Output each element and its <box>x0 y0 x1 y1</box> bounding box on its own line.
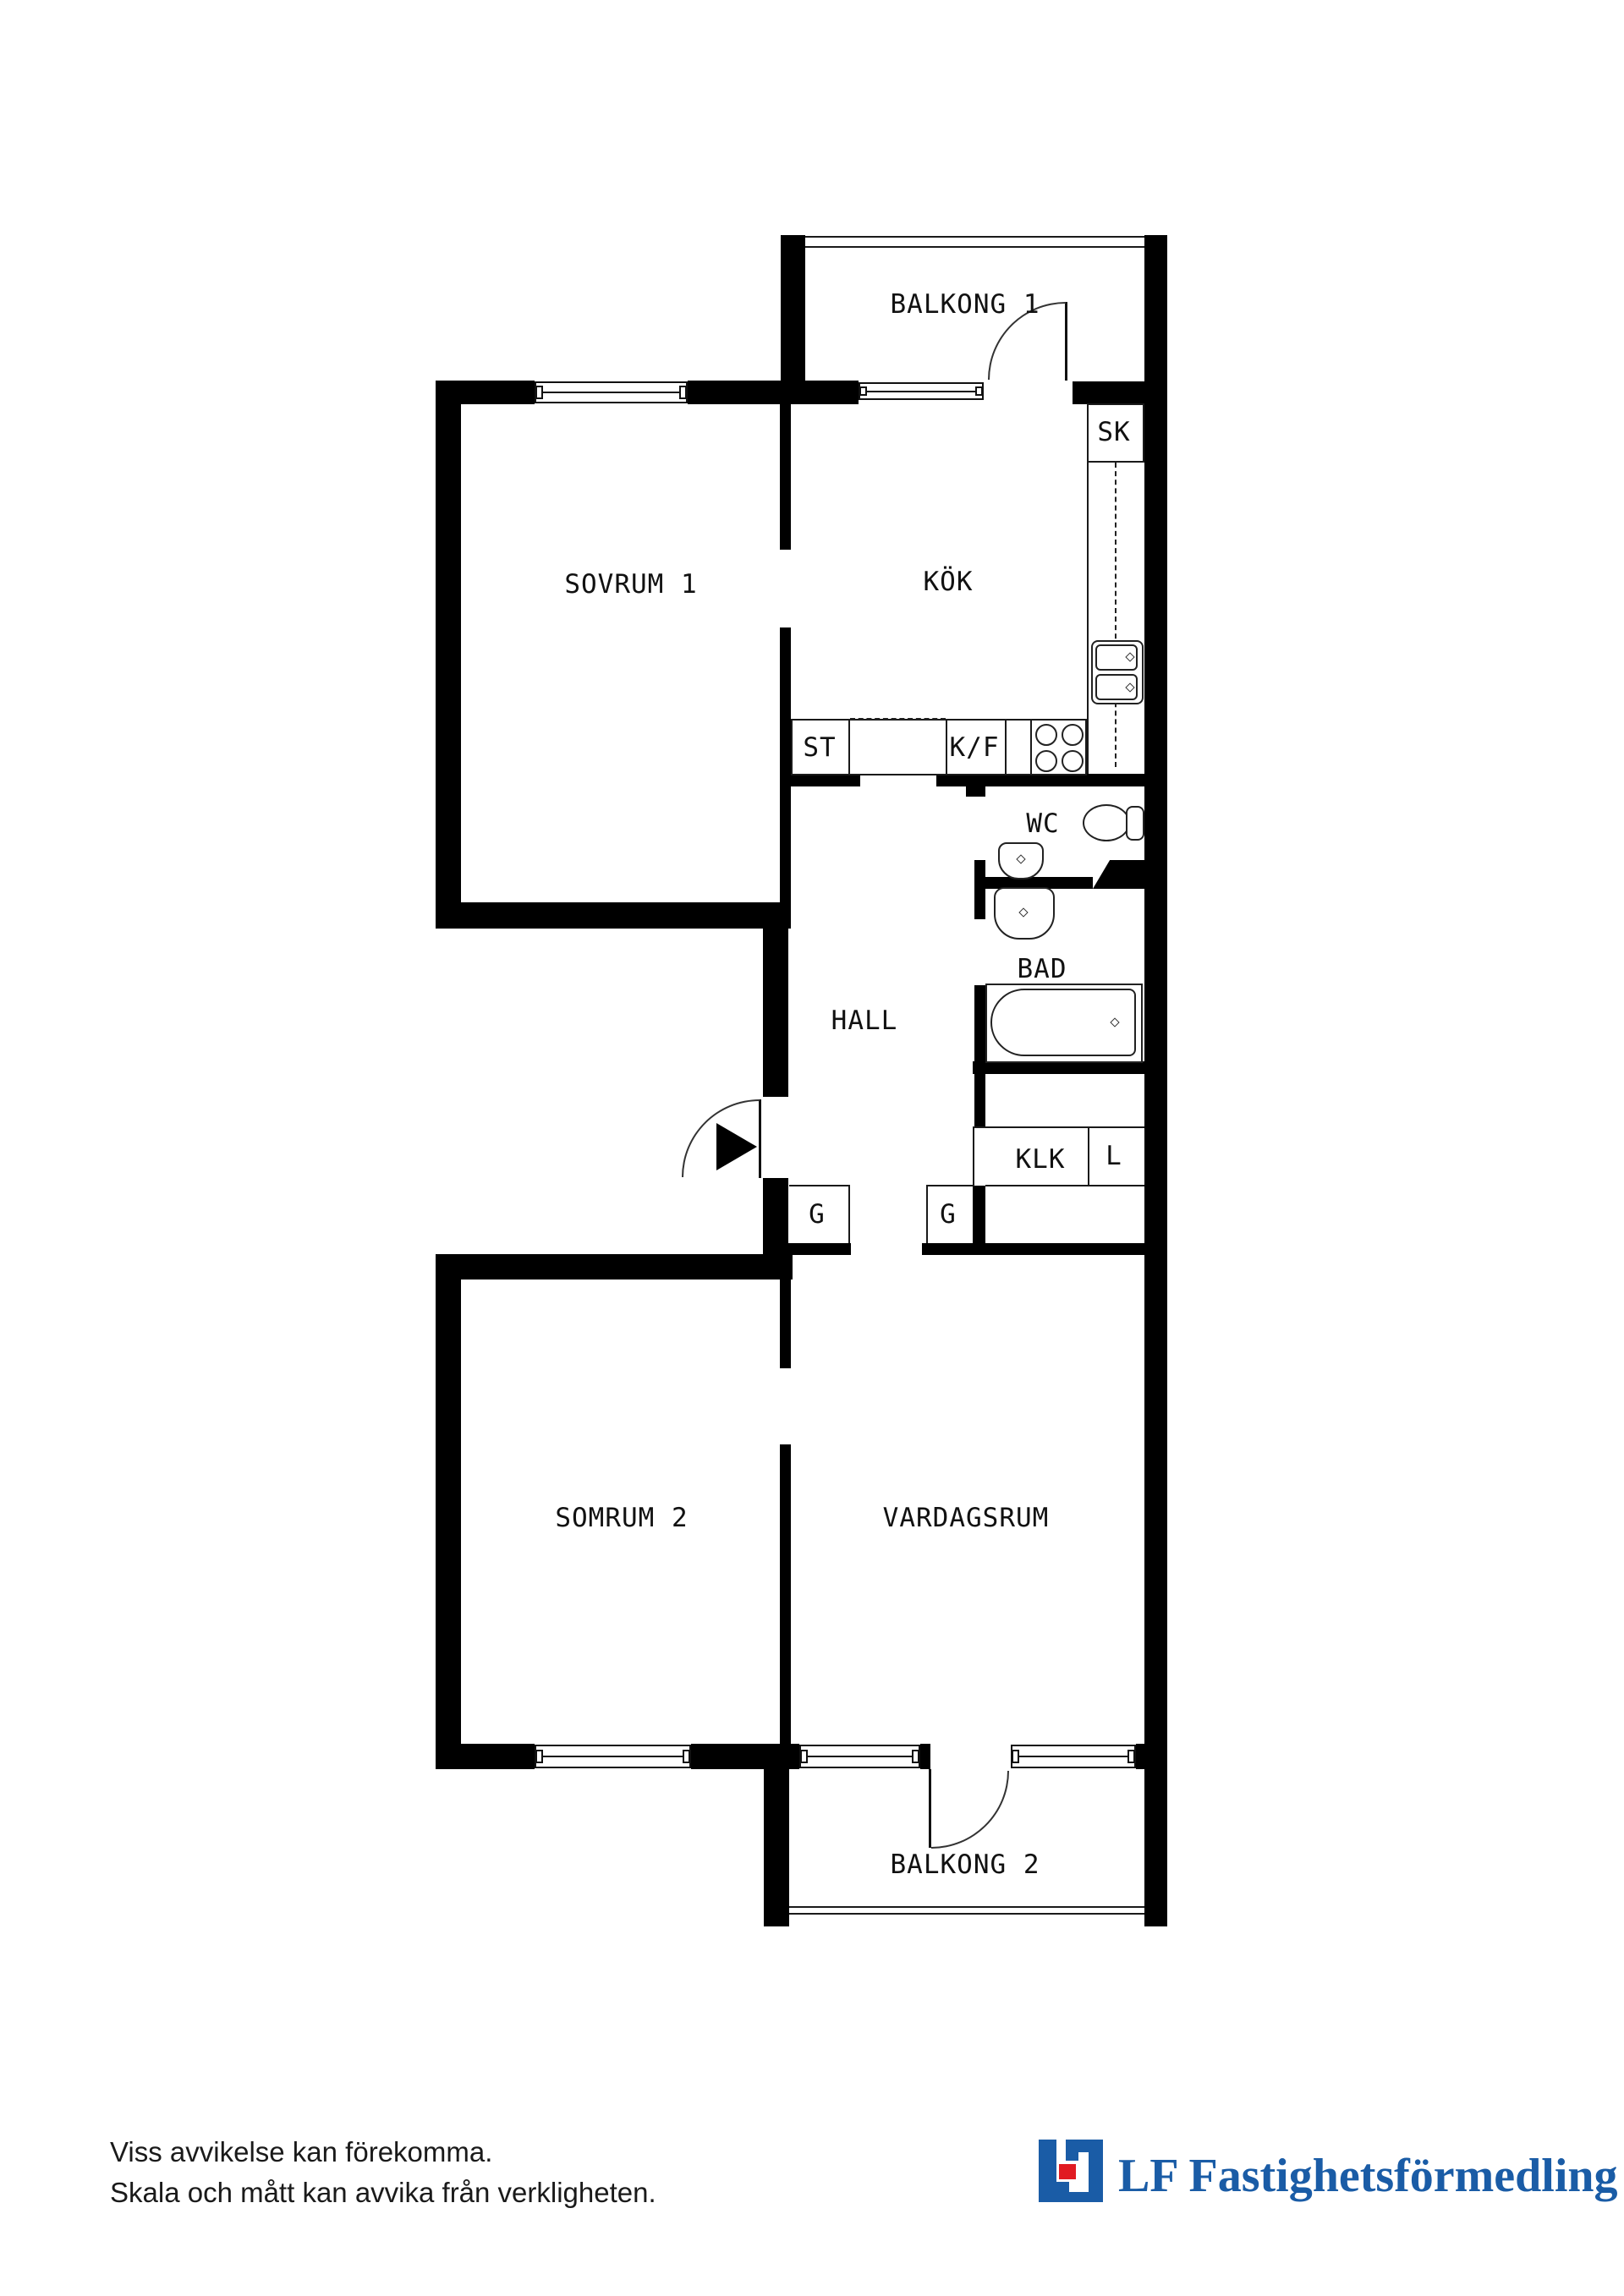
wall-wc-left <box>974 860 985 919</box>
window-end-cap <box>535 386 543 398</box>
kitchen-sink <box>1091 640 1144 704</box>
wall-hall-bottom-b <box>922 1243 1153 1255</box>
wall-wc-door-jamb <box>966 786 985 797</box>
wall-somrum2-bottom-b <box>691 1744 791 1769</box>
room-label-sk: SK <box>1097 417 1130 447</box>
wall-vardagsrum-bottom-b <box>1136 1744 1146 1769</box>
klk-left-edge <box>973 1126 974 1186</box>
kf-left-edge <box>946 719 947 775</box>
wall-hall-left-upper <box>763 929 788 1097</box>
kf-right-edge <box>1005 719 1007 775</box>
somrum2-window <box>535 1745 691 1768</box>
stove-left-edge <box>1030 719 1032 775</box>
wall-g2-right <box>973 1186 985 1243</box>
wall-sovrum1-bottom <box>436 902 791 929</box>
sovrum1-window <box>535 381 688 403</box>
stove-burner-icon <box>1035 750 1057 772</box>
wall-below-tub <box>973 1061 1144 1074</box>
room-label-vardagsrum: VARDAGSRUM <box>883 1503 1050 1533</box>
wall-somrum2-top <box>436 1254 793 1280</box>
g1-top-edge <box>789 1185 850 1186</box>
g2-left-edge <box>926 1185 928 1243</box>
stove-burner-icon <box>1035 724 1057 746</box>
room-label-bad: BAD <box>1018 954 1067 984</box>
wall-divider2-lower <box>780 1444 791 1744</box>
disclaimer-line-2: Skala och mått kan avvika från verklighe… <box>110 2177 656 2209</box>
vardagsrum-window-1 <box>799 1745 920 1768</box>
bad-washbasin <box>994 887 1055 940</box>
stove-burner-icon <box>1062 750 1084 772</box>
window-end-cap <box>1127 1750 1135 1764</box>
wall-outer-right <box>1144 235 1167 1926</box>
g1-right-edge <box>848 1185 850 1243</box>
window-end-cap <box>683 1750 690 1764</box>
wall-top-b <box>688 381 859 404</box>
pass-through-dashed-line <box>850 718 946 720</box>
wall-divider1-lower <box>780 627 791 902</box>
room-label-balkong2: BALKONG 2 <box>891 1849 1040 1880</box>
kok-window <box>859 382 984 400</box>
wall-below-wc-diagonal <box>1093 860 1144 889</box>
balkong2-rail-inner <box>789 1906 1144 1908</box>
room-label-hall: HALL <box>831 1006 898 1036</box>
wall-top-c <box>1073 381 1144 404</box>
room-label-kok: KÖK <box>924 567 974 597</box>
room-label-wc: WC <box>1026 808 1059 839</box>
window-end-cap <box>800 1750 808 1764</box>
stove-burner-icon <box>1062 724 1084 746</box>
balkong2-rail-outer <box>789 1913 1144 1915</box>
wall-divider2-upper <box>780 1280 791 1368</box>
lf-logo-wordmark: LF Fastighetsförmedling <box>1118 2149 1618 2203</box>
room-label-st: ST <box>803 732 836 763</box>
wall-vardagsrum-bottom-a <box>791 1744 799 1769</box>
wc-washbasin <box>998 842 1044 879</box>
kitchen-counter-dashed-line <box>1115 463 1116 767</box>
wall-outer-left-upper <box>436 381 461 929</box>
window-end-cap <box>679 386 687 398</box>
wall-balkong2-left <box>764 1769 789 1926</box>
toilet-tank <box>1126 806 1144 841</box>
wall-divider1-upper <box>780 404 791 550</box>
window-glass-line <box>536 1756 689 1757</box>
room-label-sovrum1: SOVRUM 1 <box>564 569 697 600</box>
vardagsrum-window-2 <box>1011 1745 1136 1768</box>
window-end-cap <box>1012 1750 1019 1764</box>
wall-kitchen-bottom-a <box>787 774 860 786</box>
klk-top-edge <box>973 1126 1144 1128</box>
room-label-klk: KLK <box>1016 1144 1066 1175</box>
balkong2-door-arc <box>931 1771 1009 1849</box>
klk-bottom-edge <box>985 1185 1144 1186</box>
lf-logo-red-square <box>1059 2164 1076 2179</box>
klk-l-divider <box>1088 1126 1089 1186</box>
lf-logo-icon <box>1039 2140 1103 2202</box>
window-end-cap <box>859 386 867 397</box>
window-glass-line <box>801 1756 919 1757</box>
floor-plan-page: BALKONG 1 SOVRUM 1 KÖK SK ST K/F WC BAD … <box>0 0 1624 2296</box>
window-glass-line <box>860 391 982 392</box>
room-label-somrum2: SOMRUM 2 <box>555 1503 688 1533</box>
st-closet-right-edge <box>848 719 850 775</box>
kitchen-counter-edge <box>1087 463 1089 774</box>
wall-balkong1-left <box>781 235 805 381</box>
wall-outer-left-lower <box>436 1254 461 1769</box>
g2-top-edge <box>926 1185 974 1186</box>
room-label-g1: G <box>809 1199 826 1230</box>
window-end-cap <box>535 1750 543 1764</box>
room-label-kf: K/F <box>950 732 1000 763</box>
wall-kitchen-bottom-b <box>936 774 1144 786</box>
entrance-arrow-icon <box>716 1123 757 1170</box>
room-label-g2: G <box>940 1199 957 1230</box>
lf-logo-shape <box>1069 2182 1089 2192</box>
window-end-cap <box>975 386 983 397</box>
window-glass-line <box>536 392 686 393</box>
bathtub <box>985 984 1143 1063</box>
wall-bad-left <box>974 985 985 1127</box>
wall-vardagsrum-bottom-mullion <box>920 1744 930 1769</box>
balkong1-rail-inner <box>805 246 1144 248</box>
disclaimer-line-1: Viss avvikelse kan förekomma. <box>110 2136 492 2168</box>
room-label-balkong1: BALKONG 1 <box>891 289 1040 320</box>
balkong1-rail-outer <box>805 236 1144 238</box>
toilet-bowl <box>1083 804 1130 841</box>
basin-drain-icon <box>1018 907 1028 917</box>
basin-drain-icon <box>1016 854 1025 863</box>
window-end-cap <box>912 1750 919 1764</box>
wall-somrum2-bottom-a <box>436 1744 535 1769</box>
window-glass-line <box>1012 1756 1134 1757</box>
room-label-l: L <box>1106 1141 1122 1171</box>
wall-hall-bottom-a <box>763 1243 851 1255</box>
